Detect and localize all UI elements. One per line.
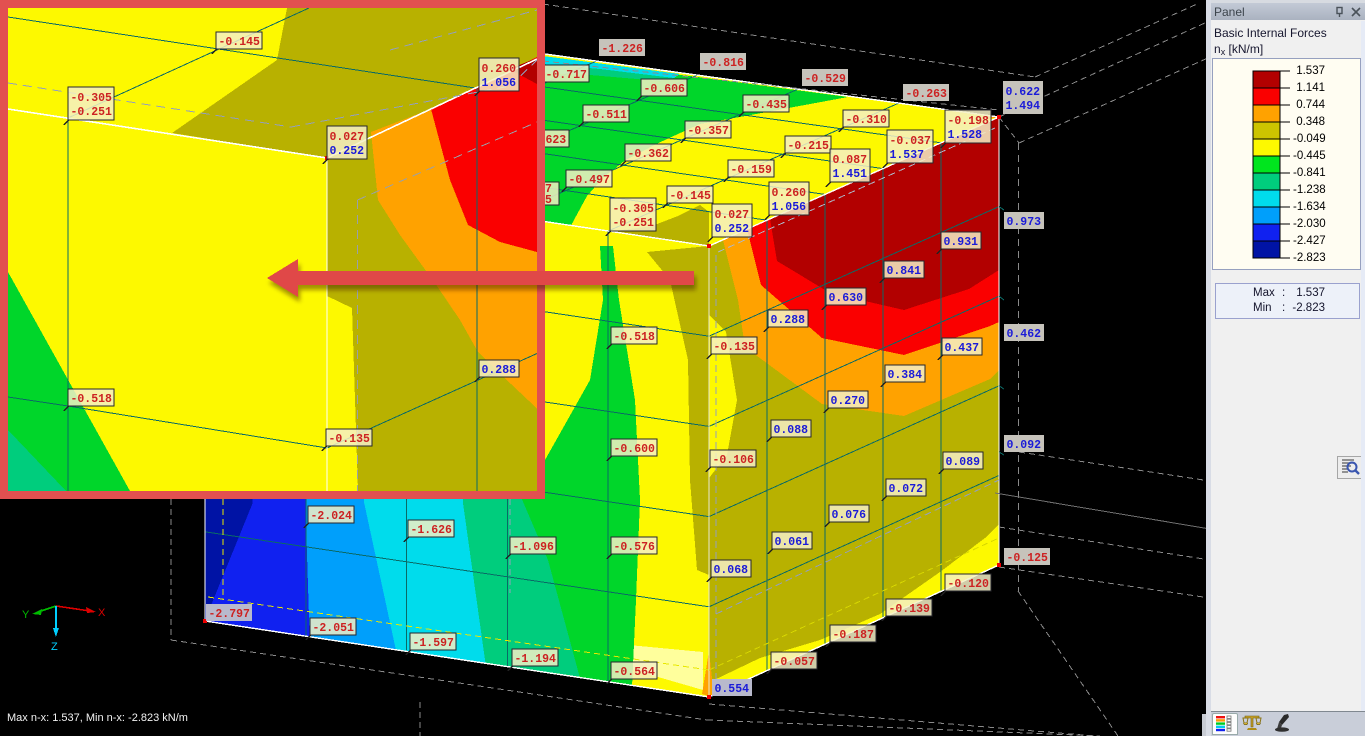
- svg-text:-0.606: -0.606: [644, 83, 686, 96]
- svg-text:1.528: 1.528: [948, 129, 983, 142]
- svg-text:-1.096: -1.096: [513, 541, 555, 554]
- svg-text:0.089: 0.089: [946, 456, 981, 469]
- svg-text:-0.816: -0.816: [703, 57, 745, 70]
- svg-text:-0.251: -0.251: [71, 106, 113, 119]
- svg-text:623: 623: [546, 134, 567, 147]
- svg-text:0.384: 0.384: [888, 369, 923, 382]
- svg-text:X: X: [98, 607, 106, 619]
- svg-text:1.451: 1.451: [833, 168, 868, 181]
- svg-text:-2.024: -2.024: [311, 510, 353, 523]
- svg-text:-0.263: -0.263: [906, 88, 948, 101]
- svg-text:-0.145: -0.145: [670, 190, 712, 203]
- svg-text:-0.435: -0.435: [746, 99, 788, 112]
- svg-text:Z: Z: [51, 641, 58, 653]
- svg-text:0.252: 0.252: [715, 223, 750, 236]
- svg-text:0.622: 0.622: [1006, 86, 1041, 99]
- svg-text:-1.226: -1.226: [602, 43, 644, 56]
- svg-text:0.270: 0.270: [831, 395, 866, 408]
- svg-text:0.973: 0.973: [1007, 216, 1042, 229]
- svg-text:0.437: 0.437: [945, 342, 980, 355]
- svg-text:-0.159: -0.159: [731, 164, 773, 177]
- svg-text:0.931: 0.931: [944, 236, 979, 249]
- svg-text:-0.120: -0.120: [948, 578, 990, 591]
- svg-text:-0.037: -0.037: [890, 135, 932, 148]
- svg-text:-0.497: -0.497: [569, 174, 611, 187]
- svg-text:1.537: 1.537: [890, 149, 925, 162]
- svg-text:0.068: 0.068: [714, 564, 749, 577]
- svg-text:-0.187: -0.187: [833, 629, 875, 642]
- svg-text:0.260: 0.260: [772, 187, 807, 200]
- svg-text:-1.597: -1.597: [413, 637, 455, 650]
- svg-text:0.088: 0.088: [774, 424, 809, 437]
- svg-text:1.056: 1.056: [482, 77, 517, 90]
- svg-text:0.841: 0.841: [887, 265, 922, 278]
- svg-text:-0.139: -0.139: [889, 603, 931, 616]
- svg-text:Y: Y: [22, 609, 30, 621]
- svg-text:0.092: 0.092: [1007, 439, 1042, 452]
- svg-text:1.056: 1.056: [772, 201, 807, 214]
- svg-text:0.288: 0.288: [482, 364, 517, 377]
- svg-text:0.027: 0.027: [330, 131, 365, 144]
- svg-text:-0.600: -0.600: [614, 443, 656, 456]
- svg-text:0.288: 0.288: [771, 314, 806, 327]
- svg-text:0.462: 0.462: [1007, 328, 1042, 341]
- svg-text:-0.518: -0.518: [614, 331, 656, 344]
- svg-text:-0.564: -0.564: [614, 666, 656, 679]
- svg-text:-0.305: -0.305: [613, 203, 655, 216]
- svg-text:0.027: 0.027: [715, 209, 750, 222]
- svg-text:1.494: 1.494: [1006, 100, 1041, 113]
- svg-text:0.252: 0.252: [330, 145, 365, 158]
- svg-text:0.260: 0.260: [482, 63, 517, 76]
- svg-text:0.076: 0.076: [832, 509, 867, 522]
- svg-text:-0.518: -0.518: [71, 393, 113, 406]
- svg-text:-0.135: -0.135: [329, 433, 371, 446]
- svg-text:-0.251: -0.251: [613, 217, 655, 230]
- svg-text:-0.305: -0.305: [71, 92, 113, 105]
- svg-text:-0.198: -0.198: [948, 115, 990, 128]
- svg-text:-0.310: -0.310: [846, 114, 888, 127]
- svg-text:0.554: 0.554: [715, 683, 750, 696]
- svg-text:-0.357: -0.357: [688, 125, 730, 138]
- svg-text:-0.106: -0.106: [713, 454, 755, 467]
- svg-text:-0.125: -0.125: [1007, 552, 1049, 565]
- svg-text:0.630: 0.630: [829, 292, 864, 305]
- svg-text:-0.529: -0.529: [805, 73, 847, 86]
- svg-text:-2.051: -2.051: [313, 622, 355, 635]
- svg-text:-0.511: -0.511: [586, 109, 628, 122]
- svg-text:-0.145: -0.145: [219, 36, 261, 49]
- svg-text:-0.576: -0.576: [614, 541, 656, 554]
- svg-text:0.072: 0.072: [889, 483, 924, 496]
- svg-text:-2.797: -2.797: [209, 608, 251, 621]
- svg-text:0.061: 0.061: [775, 536, 810, 549]
- svg-text:-0.362: -0.362: [628, 148, 670, 161]
- svg-text:-1.194: -1.194: [515, 653, 557, 666]
- svg-text:-1.626: -1.626: [411, 524, 453, 537]
- svg-text:-0.717: -0.717: [546, 69, 588, 82]
- svg-text:-0.215: -0.215: [788, 140, 830, 153]
- svg-text:0.087: 0.087: [833, 154, 868, 167]
- svg-text:-0.135: -0.135: [714, 341, 756, 354]
- svg-text:5: 5: [545, 194, 552, 207]
- svg-text:-0.057: -0.057: [774, 656, 816, 669]
